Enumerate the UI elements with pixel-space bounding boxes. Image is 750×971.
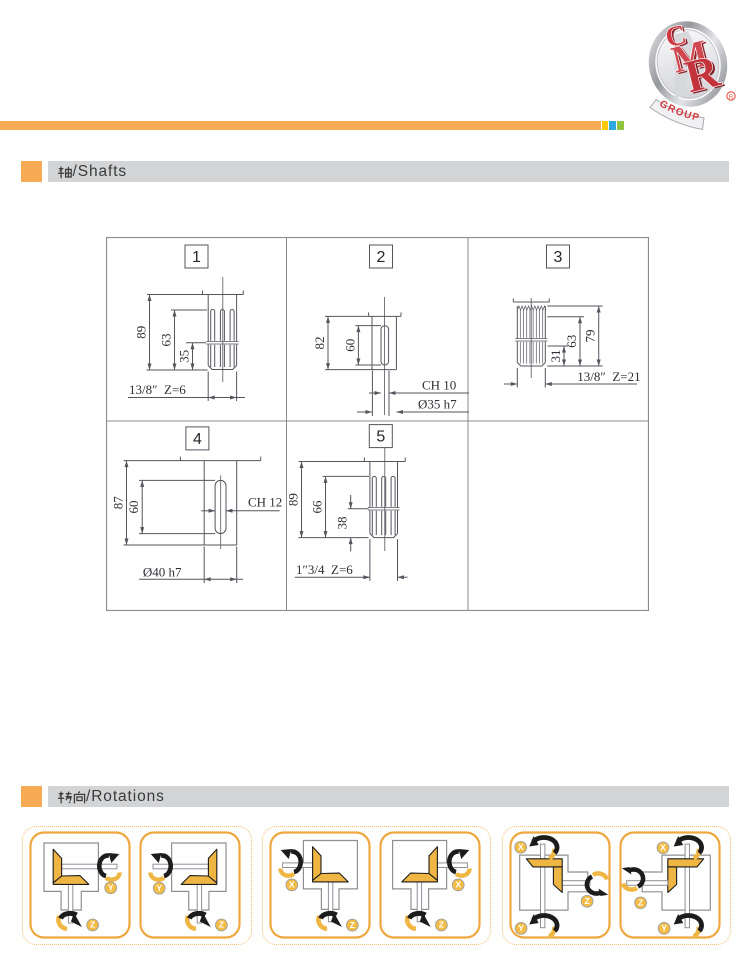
svg-text:CH 10: CH 10 <box>422 378 456 393</box>
svg-text:35: 35 <box>177 350 192 363</box>
svg-text:Ø40 h7: Ø40 h7 <box>143 565 182 580</box>
svg-text:Z: Z <box>638 898 643 908</box>
svg-text:60: 60 <box>342 339 357 352</box>
svg-text:Z: Z <box>350 920 355 930</box>
svg-text:38: 38 <box>335 517 350 530</box>
svg-text:5: 5 <box>376 429 385 446</box>
svg-text:Z: Z <box>219 920 224 930</box>
svg-text:82: 82 <box>312 337 327 350</box>
svg-text:X: X <box>289 880 295 890</box>
svg-text:Z: Z <box>90 920 95 930</box>
svg-text:1: 1 <box>192 249 201 266</box>
svg-text:89: 89 <box>286 493 301 506</box>
svg-text:79: 79 <box>583 330 598 343</box>
svg-text:3: 3 <box>554 249 563 266</box>
svg-text:Y: Y <box>108 883 114 893</box>
svg-text:63: 63 <box>159 334 174 347</box>
svg-text:1″3/4 Z=6: 1″3/4 Z=6 <box>296 562 353 577</box>
svg-text:X: X <box>660 843 666 853</box>
svg-text:CH 12: CH 12 <box>248 495 282 510</box>
svg-text:13/8″ Z=6: 13/8″ Z=6 <box>129 382 186 397</box>
svg-text:4: 4 <box>193 431 202 448</box>
svg-text:Z: Z <box>584 896 589 906</box>
svg-text:31: 31 <box>548 350 563 363</box>
svg-text:X: X <box>455 880 461 890</box>
svg-text:Y: Y <box>661 923 667 933</box>
svg-text:87: 87 <box>111 496 126 510</box>
svg-text:89: 89 <box>134 326 149 339</box>
svg-text:X: X <box>518 842 524 852</box>
svg-text:R: R <box>729 94 734 101</box>
svg-text:2: 2 <box>377 249 386 266</box>
svg-text:66: 66 <box>310 500 325 514</box>
svg-text:13/8″ Z=21: 13/8″ Z=21 <box>577 369 640 384</box>
svg-text:Y: Y <box>518 923 524 933</box>
svg-text:Y: Y <box>156 883 162 893</box>
svg-text:Ø35 h7: Ø35 h7 <box>418 397 457 412</box>
svg-text:Z: Z <box>439 920 444 930</box>
svg-text:60: 60 <box>126 501 141 514</box>
